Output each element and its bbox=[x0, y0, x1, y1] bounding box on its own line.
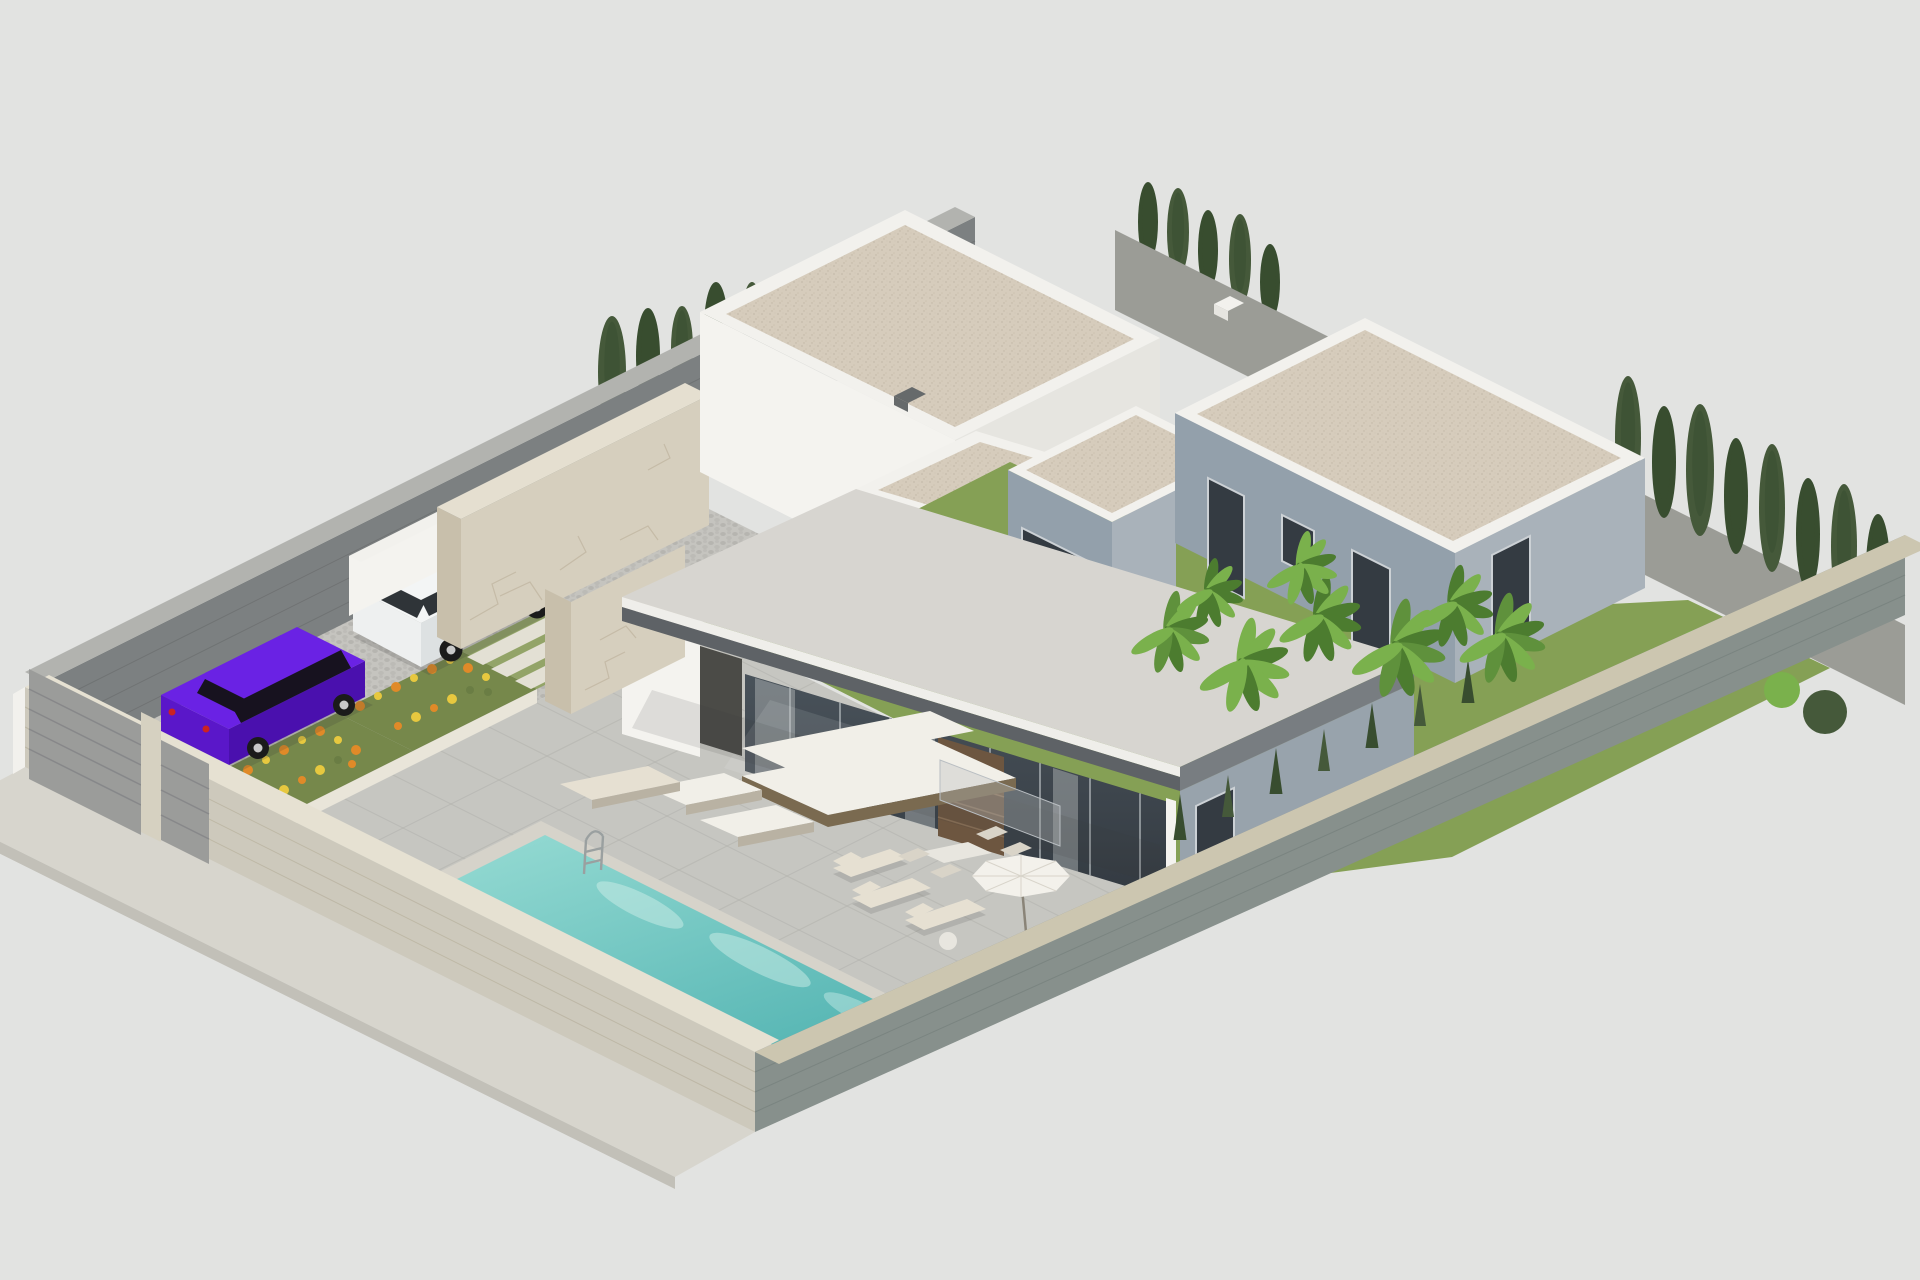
sedan-taillight bbox=[169, 709, 176, 716]
garden-bush bbox=[1803, 690, 1847, 734]
suv-hubcap bbox=[447, 646, 456, 655]
flower bbox=[447, 694, 457, 704]
sedan-taillight bbox=[203, 726, 210, 733]
cypress-tree-core bbox=[1143, 186, 1154, 250]
render-canvas bbox=[0, 0, 1920, 1280]
flower bbox=[482, 673, 490, 681]
gate-post bbox=[141, 712, 161, 842]
cypress-tree-core bbox=[1657, 412, 1670, 502]
flower bbox=[315, 765, 325, 775]
sedan-hubcap bbox=[254, 744, 263, 753]
parasol-seams bbox=[972, 855, 1070, 897]
flower bbox=[351, 745, 361, 755]
flower bbox=[466, 686, 474, 694]
stone-pillar-side bbox=[545, 589, 571, 714]
villa-render bbox=[0, 0, 1920, 1280]
flower bbox=[374, 692, 382, 700]
stone-wall-end bbox=[437, 507, 461, 649]
cypress-tree-core bbox=[1172, 192, 1184, 262]
cypress-tree-core bbox=[1765, 450, 1779, 552]
cypress-tree-core bbox=[1234, 219, 1246, 293]
sedan-hubcap bbox=[340, 701, 349, 710]
flower bbox=[334, 736, 342, 744]
side-table bbox=[939, 932, 957, 950]
flower bbox=[430, 704, 438, 712]
flower bbox=[391, 682, 401, 692]
flower bbox=[411, 712, 421, 722]
cypress-tree-core bbox=[1729, 444, 1742, 537]
garden-bush bbox=[1764, 672, 1800, 708]
wall-end-cap bbox=[13, 687, 25, 774]
flower bbox=[334, 756, 342, 764]
flower bbox=[463, 663, 473, 673]
cypress-tree-core bbox=[1692, 411, 1707, 517]
flower bbox=[394, 722, 402, 730]
cypress-tree-core bbox=[1265, 248, 1276, 309]
cypress-tree-core bbox=[1203, 214, 1214, 278]
flower bbox=[410, 674, 418, 682]
flower bbox=[298, 776, 306, 784]
flower bbox=[348, 760, 356, 768]
cypress-tree-core bbox=[1801, 484, 1814, 574]
flower bbox=[484, 688, 492, 696]
